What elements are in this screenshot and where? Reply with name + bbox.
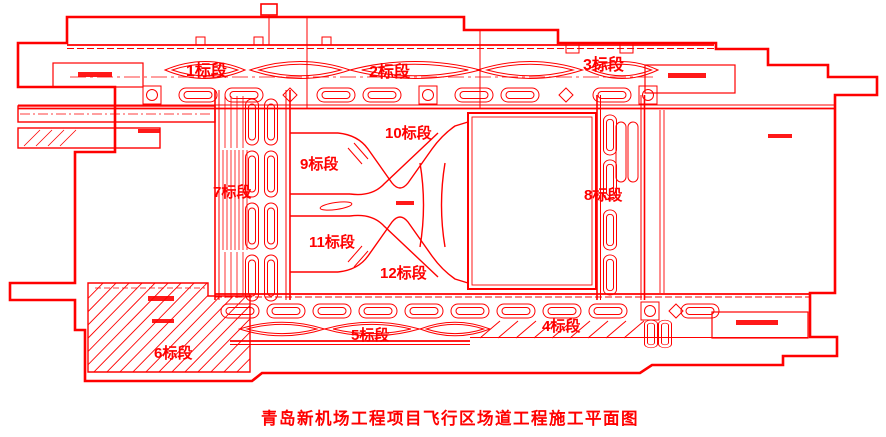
section-label-6: 6标段 [154, 344, 192, 362]
terminal-apron-rect [468, 113, 596, 289]
micro-annotation [152, 319, 174, 323]
micro-annotation [768, 134, 792, 138]
drawing-title: 青岛新机场工程项目飞行区场道工程施工平面图 [261, 408, 639, 428]
section-label-1: 1标段 [186, 61, 228, 80]
micro-annotation [736, 320, 778, 325]
cad-plan-canvas: 1标段 2标段 3标段 4标段 5标段 6标段 7标段 8标段 9标段 10标段… [0, 0, 886, 437]
section-label-9: 9标段 [300, 155, 338, 173]
micro-annotation [668, 73, 706, 78]
section-label-3: 3标段 [583, 55, 625, 74]
micro-annotation [148, 296, 174, 301]
hatch-lines [10, 278, 342, 378]
section-label-10: 10标段 [385, 124, 432, 142]
micro-annotation [396, 201, 414, 205]
section-label-8: 8标段 [584, 186, 622, 204]
section-label-7: 7标段 [213, 183, 251, 201]
site-plan-drawing: 1标段 2标段 3标段 4标段 5标段 6标段 7标段 8标段 9标段 10标段… [0, 0, 886, 437]
section-label-4: 4标段 [542, 317, 580, 335]
section-label-12: 12标段 [380, 264, 427, 282]
section-label-11: 11标段 [309, 233, 355, 251]
section-label-2: 2标段 [369, 62, 411, 81]
entry-road-arms [18, 106, 215, 148]
section-label-5: 5标段 [351, 326, 389, 344]
hatched-apron-area [10, 278, 342, 378]
micro-annotation [138, 129, 160, 133]
outer-boundary [10, 17, 877, 381]
micro-annotation [78, 72, 112, 77]
annotation-box-top-right [645, 65, 735, 93]
runway-crossing [290, 122, 468, 283]
bottom-taxiway-band [215, 294, 810, 348]
